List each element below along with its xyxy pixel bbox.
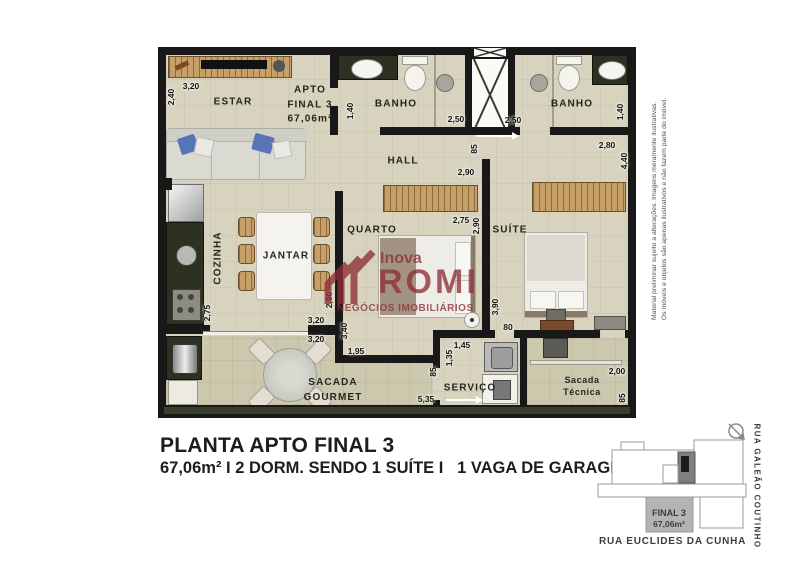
grill-counter — [166, 336, 202, 380]
banho1-shower-divider — [434, 55, 436, 127]
dim-quarto-width: 2,75 — [453, 215, 470, 225]
key-plan: FINAL 3 67,06m² — [593, 414, 753, 544]
banho2-toilet-tank — [556, 56, 582, 65]
laundry-tank — [484, 342, 518, 372]
railing-stripe — [164, 407, 630, 414]
keyplan-block-right — [694, 440, 743, 486]
fridge — [168, 184, 204, 222]
room-label-quarto: QUARTO — [347, 225, 397, 236]
wall-suite-bottom — [433, 330, 495, 338]
roofs-logo-icon — [323, 244, 377, 306]
dim-banho1-width: 2,50 — [448, 114, 465, 124]
dim-servico-pass: 85 — [428, 367, 438, 376]
dining-chair — [313, 217, 330, 237]
banho2-shower-head — [530, 74, 548, 92]
shaft-top-box — [470, 47, 510, 59]
stove — [172, 289, 201, 321]
street-label-right: RUA GALEÃO COUTINHO — [753, 424, 762, 549]
dim-suite-top: 2,80 — [599, 140, 616, 150]
tecnica-shelf — [530, 360, 622, 365]
sacada-tecnica-line1: Sacada — [563, 374, 601, 386]
suite-pillow — [558, 291, 584, 309]
dim-sacada-width: 3,20 — [308, 334, 325, 344]
room-label-hall: HALL — [387, 156, 418, 167]
entry-arrow-head-icon — [512, 132, 519, 140]
wall-shaft-bottom — [465, 127, 515, 135]
glass-door — [203, 331, 308, 335]
dim-hall-length: 2,90 — [458, 167, 475, 177]
banho2-shower-divider — [552, 55, 554, 127]
north-arrow-icon — [729, 424, 744, 439]
dim-sacada-segment: 1,95 — [348, 346, 365, 356]
dim-banho2-height: 1,40 — [615, 104, 625, 121]
suite-bed — [524, 232, 588, 318]
room-label-sacada-gourmet: SACADA GOURMET — [304, 375, 363, 405]
tv-panel — [201, 60, 267, 69]
sacada-tecnica-line2: Técnica — [563, 386, 601, 398]
banho1-shower-head — [436, 74, 454, 92]
sacada-gourmet-line2: GOURMET — [304, 390, 363, 405]
keyplan-core-box — [663, 465, 678, 483]
banho2-counter — [592, 55, 628, 85]
wall-servico-right — [520, 338, 527, 405]
burner — [177, 294, 183, 300]
watermark-brand: ROMI — [378, 263, 479, 302]
keyplan-block-lower-right — [700, 497, 743, 528]
shaft-top-x — [474, 48, 506, 57]
balcony-cabinet — [168, 380, 198, 405]
tank-basin — [491, 347, 513, 369]
banho2-toilet — [558, 65, 580, 91]
dim-banho2-width: 2,50 — [505, 115, 522, 125]
dim-suite-door: 80 — [503, 322, 512, 332]
wall-banho2-bottom — [550, 127, 628, 135]
dining-chair — [238, 217, 255, 237]
wall-right — [628, 47, 636, 418]
room-label-banho1: BANHO — [375, 99, 417, 110]
wall-banho1-bottom — [380, 127, 465, 135]
plan-subtitle: 67,06m² I 2 DORM. SENDO 1 SUÍTE I 1 VAGA… — [160, 459, 635, 478]
wall-suite-bottom — [625, 330, 636, 338]
banho1-toilet — [404, 65, 426, 91]
wall-quarto-bottom — [335, 355, 440, 363]
dim-hall-width: 85 — [469, 144, 479, 153]
room-label-servico: SERVIÇO — [444, 383, 497, 394]
servico-arrow — [446, 399, 476, 401]
room-label-jantar: JANTAR — [263, 251, 309, 262]
burner — [188, 294, 194, 300]
sofa-pillow-white — [193, 136, 214, 157]
sofa — [166, 128, 306, 180]
wall-servico-left — [433, 338, 440, 368]
console-plant — [273, 60, 285, 72]
floor-plan: APTO FINAL 3 67,06m² ESTAR BANHO BANHO H… — [158, 47, 636, 418]
suite-dresser — [594, 316, 626, 330]
disclaimer-text: Material preliminar sujeito a alterações… — [650, 48, 669, 320]
dim-banho1-height: 1,40 — [345, 103, 355, 120]
keyplan-notch — [621, 442, 644, 450]
banho1-toilet-tank — [402, 56, 428, 65]
water-heater — [543, 338, 568, 358]
dining-chair — [238, 271, 255, 291]
console-decor — [175, 60, 190, 70]
unit-label-line3: 67,06m² — [287, 112, 332, 127]
dim-sacada-height: 3,40 — [339, 323, 349, 340]
dim-sacada-length: 5,35 — [418, 394, 435, 404]
entry-arrow — [476, 135, 512, 137]
kitchen-counter — [166, 222, 204, 325]
dim-servico-height: 1,35 — [444, 350, 454, 367]
dim-cozinha-height: 2,75 — [202, 305, 212, 322]
kitchen-sink — [176, 245, 197, 266]
dim-tecnica-height: 85 — [617, 393, 627, 402]
wall-left — [158, 47, 166, 418]
banho2-sink — [598, 61, 626, 80]
suite-wardrobe — [532, 182, 626, 212]
keyplan-unit-area: 67,06m² — [653, 519, 685, 529]
grill — [172, 344, 198, 374]
room-label-banho2: BANHO — [551, 99, 593, 110]
disclaimer-line1: Material preliminar sujeito a alterações… — [650, 48, 660, 320]
unit-label-line1: APTO — [287, 83, 332, 98]
dim-suite-side: 4,40 — [619, 153, 629, 170]
keyplan-walkway — [598, 484, 746, 497]
suite-bed-blanket — [527, 235, 585, 281]
dim-quarto-height: 2,90 — [471, 218, 481, 235]
dim-jantar-width: 3,20 — [308, 315, 325, 325]
brand-watermark: Inova ROMI NEGÓCIOS IMOBILIÁRIOS — [323, 244, 508, 322]
room-label-sacada-tecnica: Sacada Técnica — [563, 374, 601, 398]
room-label-cozinha: COZINHA — [213, 231, 224, 284]
servico-arrow-head-icon — [476, 396, 483, 404]
shaft-x-brace — [472, 55, 508, 135]
street-label-bottom: RUA EUCLIDES DA CUNHA — [599, 536, 746, 547]
dim-tecnica-width: 2,00 — [609, 366, 626, 376]
keyplan-core-shaft — [681, 456, 689, 472]
wall-top — [158, 47, 636, 55]
room-label-estar: ESTAR — [214, 97, 253, 108]
tv-console — [168, 56, 292, 78]
banho1-sink — [351, 59, 383, 79]
unit-label-line2: FINAL 3 — [287, 98, 332, 113]
sacada-gourmet-line1: SACADA — [304, 375, 363, 390]
dim-estar-height: 2,40 — [166, 89, 176, 106]
keyplan-unit-label: FINAL 3 — [652, 508, 686, 518]
sofa-pillow-white — [272, 140, 293, 160]
unit-label: APTO FINAL 3 67,06m² — [287, 83, 332, 127]
dim-estar-width: 3,20 — [183, 81, 200, 91]
wall-bottom-railing — [158, 405, 636, 418]
watermark-tagline: NEGÓCIOS IMOBILIÁRIOS — [337, 303, 474, 314]
burner — [177, 307, 183, 313]
quarto-wardrobe — [383, 185, 478, 212]
burner — [188, 307, 194, 313]
plan-title: PLANTA APTO FINAL 3 — [160, 434, 394, 458]
floorplan-page: APTO FINAL 3 67,06m² ESTAR BANHO BANHO H… — [0, 0, 800, 565]
wall-suite-bottom — [514, 330, 600, 338]
disclaimer-line2: Os móveis e objetos são apenas ilustrati… — [660, 48, 670, 320]
room-label-suite: SUÍTE — [493, 225, 528, 236]
dim-servico-width: 1,45 — [454, 340, 471, 350]
wall-estar-stub — [158, 178, 172, 190]
suite-pillow — [530, 291, 556, 309]
banho1-counter — [338, 55, 398, 80]
dining-chair — [238, 244, 255, 264]
